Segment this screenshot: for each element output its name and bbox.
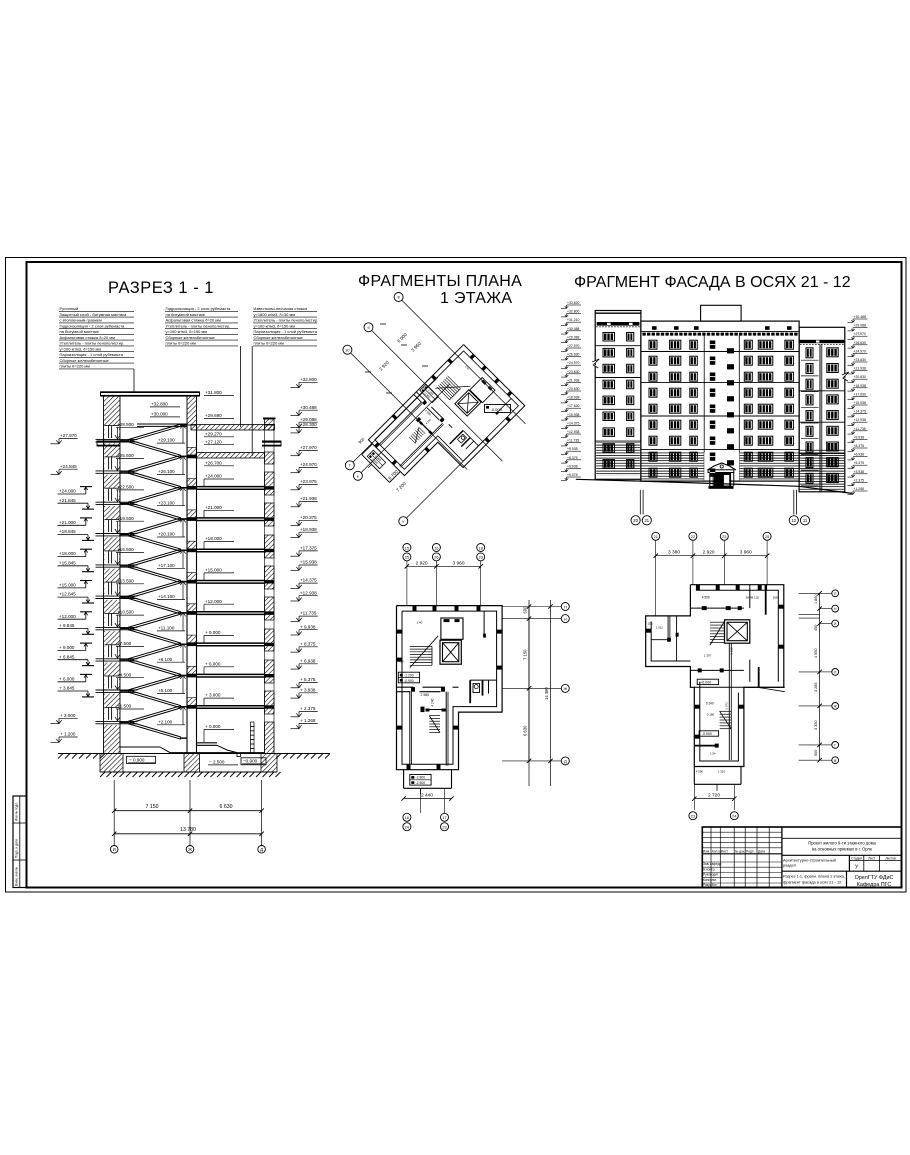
svg-text:+13.500: +13.500 xyxy=(117,578,134,583)
svg-text:+ 8.375: + 8.375 xyxy=(300,641,316,646)
svg-text:60 48 120: 60 48 120 xyxy=(746,596,760,600)
svg-text:Листов: Листов xyxy=(885,857,896,861)
svg-text:+ 6.000: + 6.000 xyxy=(205,661,221,666)
svg-text:24: 24 xyxy=(732,815,736,819)
svg-text:+29.088: +29.088 xyxy=(300,417,317,422)
svg-text:+28.500: +28.500 xyxy=(117,422,134,427)
svg-text:+15.000: +15.000 xyxy=(205,568,222,573)
svg-text:+29.088: +29.088 xyxy=(567,335,579,339)
svg-text:-0.900: -0.900 xyxy=(702,732,712,736)
svg-text:+11.100: +11.100 xyxy=(158,626,175,631)
svg-text:205: 205 xyxy=(648,622,653,626)
svg-text:3 285: 3 285 xyxy=(814,682,818,692)
svg-text:+18.938: +18.938 xyxy=(854,384,866,388)
svg-text:+ 3.000: + 3.000 xyxy=(60,713,76,718)
svg-text:+21.938: +21.938 xyxy=(300,496,317,501)
svg-text:4 590: 4 590 xyxy=(696,770,704,774)
svg-text:У: У xyxy=(402,519,405,524)
svg-text:Сборные железобетонные: Сборные железобетонные xyxy=(166,335,216,340)
svg-text:21: 21 xyxy=(644,518,649,523)
svg-text:15: 15 xyxy=(405,546,409,550)
svg-text:на основных приемах в г. Орле: на основных приемах в г. Орле xyxy=(812,847,873,852)
svg-text:+29.270: +29.270 xyxy=(205,431,222,436)
svg-text:плиты δ=220 мм: плиты δ=220 мм xyxy=(254,341,285,346)
svg-text:23: 23 xyxy=(479,556,483,560)
svg-text:ОрелГТУ ФДиС: ОрелГТУ ФДиС xyxy=(855,875,894,881)
svg-text:+2.375: +2.375 xyxy=(854,478,865,482)
svg-text:3 350: 3 350 xyxy=(814,720,818,730)
svg-text:7 150: 7 150 xyxy=(523,649,528,660)
svg-text:12: 12 xyxy=(791,518,796,523)
svg-text:+21.845: +21.845 xyxy=(59,498,76,503)
svg-text:Д: Д xyxy=(260,847,263,852)
svg-text:16: 16 xyxy=(405,816,409,820)
svg-text:Асфальтовая стяжка δ=20 мм: Асфальтовая стяжка δ=20 мм xyxy=(60,335,116,340)
svg-text:γ=100 кг/м3, δ=150 мм: γ=100 кг/м3, δ=150 мм xyxy=(60,346,102,351)
svg-text:13 780: 13 780 xyxy=(180,827,196,833)
svg-text:Изм.: Изм. xyxy=(703,850,710,854)
svg-text:+ 5.375: + 5.375 xyxy=(300,677,316,682)
svg-text:23: 23 xyxy=(442,826,446,830)
svg-text:1 54: 1 54 xyxy=(710,752,716,756)
svg-text:+12.845: +12.845 xyxy=(59,592,76,597)
svg-text:+ 9.000: + 9.000 xyxy=(59,645,75,650)
svg-text:1 307: 1 307 xyxy=(704,654,712,658)
svg-text:фрагмент фасада в осях 21 - 12: фрагмент фасада в осях 21 - 12 xyxy=(783,880,841,885)
svg-text:Стадия: Стадия xyxy=(851,857,862,861)
svg-text:Лист: Лист xyxy=(868,857,875,861)
svg-text:+5.375: +5.375 xyxy=(854,461,865,465)
svg-text:7 150: 7 150 xyxy=(146,804,159,810)
svg-text:+18.000: +18.000 xyxy=(59,551,76,556)
svg-text:9 240: 9 240 xyxy=(706,702,714,706)
svg-text:+ 6.938: + 6.938 xyxy=(300,658,316,663)
svg-text:+ 6.000: + 6.000 xyxy=(59,676,75,681)
svg-text:+12.938: +12.938 xyxy=(854,418,866,422)
svg-text:+ 1.268: + 1.268 xyxy=(300,718,316,723)
svg-text:+15.938: +15.938 xyxy=(854,401,866,405)
svg-text:3 960: 3 960 xyxy=(452,560,464,566)
svg-text:1 ЭТАЖА: 1 ЭТАЖА xyxy=(440,290,512,307)
svg-text:ФРАГМЕНТ ФАСАДА В ОСЯХ 21 -: ФРАГМЕНТ ФАСАДА В ОСЯХ 21 - 12 xyxy=(574,274,851,291)
svg-text:Сборные железобетонные: Сборные железобетонные xyxy=(60,358,110,363)
svg-text:+20.375: +20.375 xyxy=(300,515,317,520)
svg-text:1 40: 1 40 xyxy=(417,621,423,625)
svg-text:-2.800: -2.800 xyxy=(416,776,426,780)
svg-text:23: 23 xyxy=(691,815,695,819)
svg-text:− 0.900: − 0.900 xyxy=(129,758,145,763)
svg-text:-0.900: -0.900 xyxy=(404,679,414,683)
svg-text:+23.100: +23.100 xyxy=(158,500,175,505)
svg-text:+17.630: +17.630 xyxy=(854,392,866,396)
svg-text:2 920: 2 920 xyxy=(416,560,428,566)
svg-text:500: 500 xyxy=(814,750,818,756)
svg-text:+20.630: +20.630 xyxy=(854,375,866,379)
svg-text:+ 3.938: + 3.938 xyxy=(300,687,316,692)
svg-text:+5.100: +5.100 xyxy=(158,688,173,693)
svg-text:+30.000: +30.000 xyxy=(151,412,168,417)
svg-text:-2.500: -2.500 xyxy=(416,781,426,785)
svg-text:268: 268 xyxy=(773,596,778,600)
svg-text:+ 9.000: + 9.000 xyxy=(205,630,221,635)
svg-text:+6.938: +6.938 xyxy=(854,453,865,457)
svg-text:+ 2.375: + 2.375 xyxy=(300,706,316,711)
svg-text:+17.630: +17.630 xyxy=(567,404,579,408)
svg-text:+15.000: +15.000 xyxy=(59,583,76,588)
svg-text:γ=1800 кг/м3, δ=30 мм: γ=1800 кг/м3, δ=30 мм xyxy=(254,312,296,317)
svg-text:Консульт.: Консульт. xyxy=(703,878,717,882)
svg-text:Дата: Дата xyxy=(758,850,765,854)
svg-text:плиты δ=220 мм: плиты δ=220 мм xyxy=(60,364,91,369)
svg-text:Гидроизоляция - 2 слоя рубемас: Гидроизоляция - 2 слоя рубемаста xyxy=(166,306,232,311)
svg-text:Асфальтовая стяжка δ=20 мм: Асфальтовая стяжка δ=20 мм xyxy=(166,318,222,323)
svg-text:РАЗРЕЗ 1 - 1: РАЗРЕЗ 1 - 1 xyxy=(108,279,214,297)
svg-text:Н: Н xyxy=(564,616,567,621)
svg-text:плиты δ=220 мм: плиты δ=220 мм xyxy=(166,341,197,346)
svg-text:+1.268: +1.268 xyxy=(854,487,865,491)
svg-text:+31.800: +31.800 xyxy=(205,390,222,395)
svg-text:450: 450 xyxy=(814,625,818,631)
svg-text:на битумной мастике: на битумной мастике xyxy=(60,329,100,334)
svg-text:Защитный слой - битумная масти: Защитный слой - битумная мастика xyxy=(60,312,128,317)
svg-text:+17.100: +17.100 xyxy=(158,563,175,568)
svg-text:6 630: 6 630 xyxy=(523,725,528,736)
svg-text:Утеплитель - плиты пенополисти: Утеплитель - плиты пенополистир. xyxy=(254,318,319,323)
svg-text:+26.100: +26.100 xyxy=(158,469,175,474)
svg-text:+8.375: +8.375 xyxy=(567,456,578,460)
svg-text:600: 600 xyxy=(523,606,528,614)
svg-text:№ док.: № док. xyxy=(735,850,745,854)
svg-text:+8.375: +8.375 xyxy=(854,444,865,448)
svg-text:16: 16 xyxy=(434,546,438,550)
svg-text:И: И xyxy=(113,847,116,852)
svg-text:+14.100: +14.100 xyxy=(158,594,175,599)
svg-text:+26.630: +26.630 xyxy=(854,341,866,345)
svg-text:2 985: 2 985 xyxy=(421,693,430,697)
svg-text:+26.630: +26.630 xyxy=(567,353,579,357)
svg-text:25: 25 xyxy=(405,556,409,560)
svg-text:+24.000: +24.000 xyxy=(59,489,76,494)
svg-text:Взам. инв №: Взам. инв № xyxy=(15,867,19,886)
svg-text:+24.000: +24.000 xyxy=(205,474,222,479)
svg-text:+29.690: +29.690 xyxy=(205,413,222,418)
svg-text:+ 9.938: + 9.938 xyxy=(300,624,316,629)
svg-text:758: 758 xyxy=(399,660,404,664)
svg-text:+20.630: +20.630 xyxy=(567,387,579,391)
svg-text:+3.938: +3.938 xyxy=(854,470,865,474)
svg-text:+ 3.845: + 3.845 xyxy=(59,686,75,691)
svg-text:+24.970: +24.970 xyxy=(567,361,579,365)
svg-text:+21.000: +21.000 xyxy=(59,520,76,525)
svg-text:+21.938: +21.938 xyxy=(567,378,579,382)
svg-text:+1.500: +1.500 xyxy=(117,704,132,709)
svg-text:+23.630: +23.630 xyxy=(854,358,866,362)
svg-text:Лист: Лист xyxy=(721,850,728,854)
svg-text:+21.938: +21.938 xyxy=(854,367,866,371)
svg-text:+11.735: +11.735 xyxy=(300,611,317,616)
svg-text:+28.300: +28.300 xyxy=(300,422,317,427)
svg-text:3 380: 3 380 xyxy=(668,550,680,556)
svg-text:+33.620: +33.620 xyxy=(567,301,579,305)
svg-text:+27.970: +27.970 xyxy=(300,445,317,450)
svg-text:+9.938: +9.938 xyxy=(567,447,578,451)
svg-text:-1.200: -1.200 xyxy=(404,673,414,677)
svg-text:10: 10 xyxy=(345,347,350,352)
svg-text:+24.970: +24.970 xyxy=(300,462,317,467)
svg-text:4 590: 4 590 xyxy=(702,596,710,600)
svg-text:+18.938: +18.938 xyxy=(300,527,317,532)
svg-text:1 860: 1 860 xyxy=(814,594,818,604)
svg-text:+31.210: +31.210 xyxy=(567,318,579,322)
svg-text:+19.500: +19.500 xyxy=(117,516,134,521)
svg-text:+9.938: +9.938 xyxy=(854,435,865,439)
svg-text:Кафедра ПГС: Кафедра ПГС xyxy=(857,882,892,888)
svg-text:-0.000: -0.000 xyxy=(491,407,503,412)
svg-text:Подп.: Подп. xyxy=(746,850,755,854)
svg-text:И: И xyxy=(834,622,837,626)
svg-text:0 180: 0 180 xyxy=(707,713,715,717)
svg-text:2 720: 2 720 xyxy=(708,793,720,799)
svg-text:Утеплитель - плиты пенополисти: Утеплитель - плиты пенополистир. xyxy=(60,341,125,346)
svg-text:+30.488: +30.488 xyxy=(300,405,317,410)
svg-text:+ 9.845: + 9.845 xyxy=(59,623,75,628)
svg-text:+26.700: +26.700 xyxy=(205,460,222,465)
svg-text:21: 21 xyxy=(654,535,658,539)
svg-text:+15.938: +15.938 xyxy=(567,413,579,417)
svg-text:+ 1.200: + 1.200 xyxy=(60,732,76,737)
svg-text:Н: Н xyxy=(834,607,837,611)
svg-text:Ж: Ж xyxy=(188,847,192,852)
svg-text:+16.500: +16.500 xyxy=(117,547,134,552)
svg-text:+12.938: +12.938 xyxy=(300,590,317,595)
svg-text:+2.100: +2.100 xyxy=(158,719,173,724)
svg-text:γ=100 кг/м3, δ=150 мм: γ=100 кг/м3, δ=150 мм xyxy=(166,329,208,334)
svg-text:+24.845: +24.845 xyxy=(60,464,77,469)
svg-text:5 110: 5 110 xyxy=(730,647,734,655)
svg-text:+27.970: +27.970 xyxy=(567,344,579,348)
svg-text:+24.970: +24.970 xyxy=(854,349,866,353)
svg-text:Сборные железобетонные: Сборные железобетонные xyxy=(254,335,304,340)
svg-text:4 950: 4 950 xyxy=(814,648,818,658)
svg-text:2 920: 2 920 xyxy=(703,550,715,556)
svg-text:+32.800: +32.800 xyxy=(151,402,168,407)
svg-text:+30.488: +30.488 xyxy=(567,327,579,331)
svg-text:− 2.500: − 2.500 xyxy=(209,760,225,765)
svg-text:+23.975: +23.975 xyxy=(300,479,317,484)
svg-text:20: 20 xyxy=(633,518,638,523)
svg-text:+29.088: +29.088 xyxy=(854,324,866,328)
svg-text:+8.100: +8.100 xyxy=(158,657,173,662)
svg-text:+14.375: +14.375 xyxy=(567,421,579,425)
svg-text:14 380: 14 380 xyxy=(544,687,549,700)
svg-text:Гидроизоляция - 2 слоя рубемас: Гидроизоляция - 2 слоя рубемаста xyxy=(60,323,126,328)
svg-text:+32.800: +32.800 xyxy=(300,377,317,382)
svg-text:+ 0.000: + 0.000 xyxy=(205,724,221,729)
svg-text:Ж: Ж xyxy=(563,686,567,691)
svg-text:Д: Д xyxy=(564,759,567,764)
svg-text:+0.000: +0.000 xyxy=(700,681,711,685)
svg-text:+25.500: +25.500 xyxy=(117,453,134,458)
svg-text:+11.735: +11.735 xyxy=(854,427,866,431)
svg-text:Подп. и дата: Подп. и дата xyxy=(15,839,19,858)
svg-text:6 630: 6 630 xyxy=(220,804,233,810)
svg-text:Утеплитель - плиты пенополисти: Утеплитель - плиты пенополистир. xyxy=(166,323,231,328)
svg-text:+21.000: +21.000 xyxy=(205,505,222,510)
svg-text:+6.938: +6.938 xyxy=(567,464,578,468)
svg-text:Г: Г xyxy=(834,744,836,748)
svg-text:22: 22 xyxy=(691,535,695,539)
svg-text:Инв № подл.: Инв № подл. xyxy=(15,802,19,821)
svg-text:+18.845: +18.845 xyxy=(59,529,76,534)
svg-text:+15.938: +15.938 xyxy=(300,560,317,565)
svg-text:1 511: 1 511 xyxy=(656,626,664,630)
svg-text:+15.845: +15.845 xyxy=(59,560,76,565)
svg-text:+27.970: +27.970 xyxy=(60,433,77,438)
svg-text:+22.500: +22.500 xyxy=(117,485,134,490)
svg-text:+4.500: +4.500 xyxy=(117,672,132,677)
svg-text:раздел: раздел xyxy=(783,863,797,868)
svg-text:с втопленным гравием: с втопленным гравием xyxy=(60,318,103,323)
svg-text:Пароизоляция - 1 слой рубемаст: Пароизоляция - 1 слой рубемаста xyxy=(60,352,124,357)
svg-text:П: П xyxy=(564,604,567,609)
svg-text:+ 6.845: + 6.845 xyxy=(59,654,75,659)
svg-text:1 310: 1 310 xyxy=(718,770,726,774)
svg-text:+12.000: +12.000 xyxy=(59,614,76,619)
svg-text:+18.000: +18.000 xyxy=(205,536,222,541)
svg-text:+7.500: +7.500 xyxy=(117,641,132,646)
svg-text:4 240: 4 240 xyxy=(431,698,435,706)
svg-text:+27.970: +27.970 xyxy=(854,332,866,336)
svg-text:+10.500: +10.500 xyxy=(117,610,134,615)
svg-text:ФРАГМЕНТЫ ПЛАНА: ФРАГМЕНТЫ ПЛАНА xyxy=(358,273,522,290)
svg-text:−0.900: −0.900 xyxy=(243,759,258,764)
svg-text:+29.100: +29.100 xyxy=(158,438,175,443)
svg-text:3 671: 3 671 xyxy=(725,702,729,710)
svg-text:17: 17 xyxy=(442,816,446,820)
svg-text:γ=100 кг/м3, δ=150 мм: γ=100 кг/м3, δ=150 мм xyxy=(254,323,296,328)
svg-text:+12.938: +12.938 xyxy=(567,430,579,434)
svg-text:Пароизоляция - 1 слой рубемаст: Пароизоляция - 1 слой рубемаста xyxy=(254,329,318,334)
svg-text:Руководит.: Руководит. xyxy=(703,873,719,877)
svg-text:Н.контр.: Н.контр. xyxy=(703,867,715,871)
svg-text:+12.000: +12.000 xyxy=(205,599,222,604)
svg-text:24: 24 xyxy=(405,826,409,830)
svg-text:+20.100: +20.100 xyxy=(158,532,175,537)
svg-text:26: 26 xyxy=(434,556,438,560)
svg-text:3 960: 3 960 xyxy=(740,550,752,556)
svg-text:Проект жилого 9-ти этажного до: Проект жилого 9-ти этажного дома xyxy=(808,841,876,846)
svg-text:+17.375: +17.375 xyxy=(300,546,317,551)
svg-text:+14.375: +14.375 xyxy=(300,578,317,583)
svg-text:+23.630: +23.630 xyxy=(567,370,579,374)
svg-text:+32.800: +32.800 xyxy=(567,310,579,314)
svg-text:+27.120: +27.120 xyxy=(205,439,222,444)
svg-text:+30.488: +30.488 xyxy=(854,315,866,319)
svg-text:+11.735: +11.735 xyxy=(567,439,579,443)
svg-text:Рулонный: Рулонный xyxy=(60,306,79,311)
svg-text:25: 25 xyxy=(765,535,769,539)
svg-text:23: 23 xyxy=(722,535,726,539)
svg-text:+ 3.000: + 3.000 xyxy=(205,693,221,698)
svg-text:2 440: 2 440 xyxy=(421,792,433,798)
svg-text:Разрез 1-1, фрагм. плана 1 эта: Разрез 1-1, фрагм. плана 1 этажа, xyxy=(783,874,845,879)
svg-text:+14.375: +14.375 xyxy=(854,410,866,414)
svg-text:П: П xyxy=(834,592,837,596)
svg-text:11: 11 xyxy=(803,518,808,523)
svg-text:+5.375: +5.375 xyxy=(567,473,578,477)
svg-text:Известково-песчаная стяжка: Известково-песчаная стяжка xyxy=(254,306,308,311)
svg-text:на битумной мастике: на битумной мастике xyxy=(166,312,206,317)
svg-text:+18.938: +18.938 xyxy=(567,396,579,400)
svg-text:18: 18 xyxy=(479,546,483,550)
svg-text:Зав. кафедр: Зав. кафедр xyxy=(703,862,722,866)
svg-text:Разработ.: Разработ. xyxy=(703,883,717,887)
